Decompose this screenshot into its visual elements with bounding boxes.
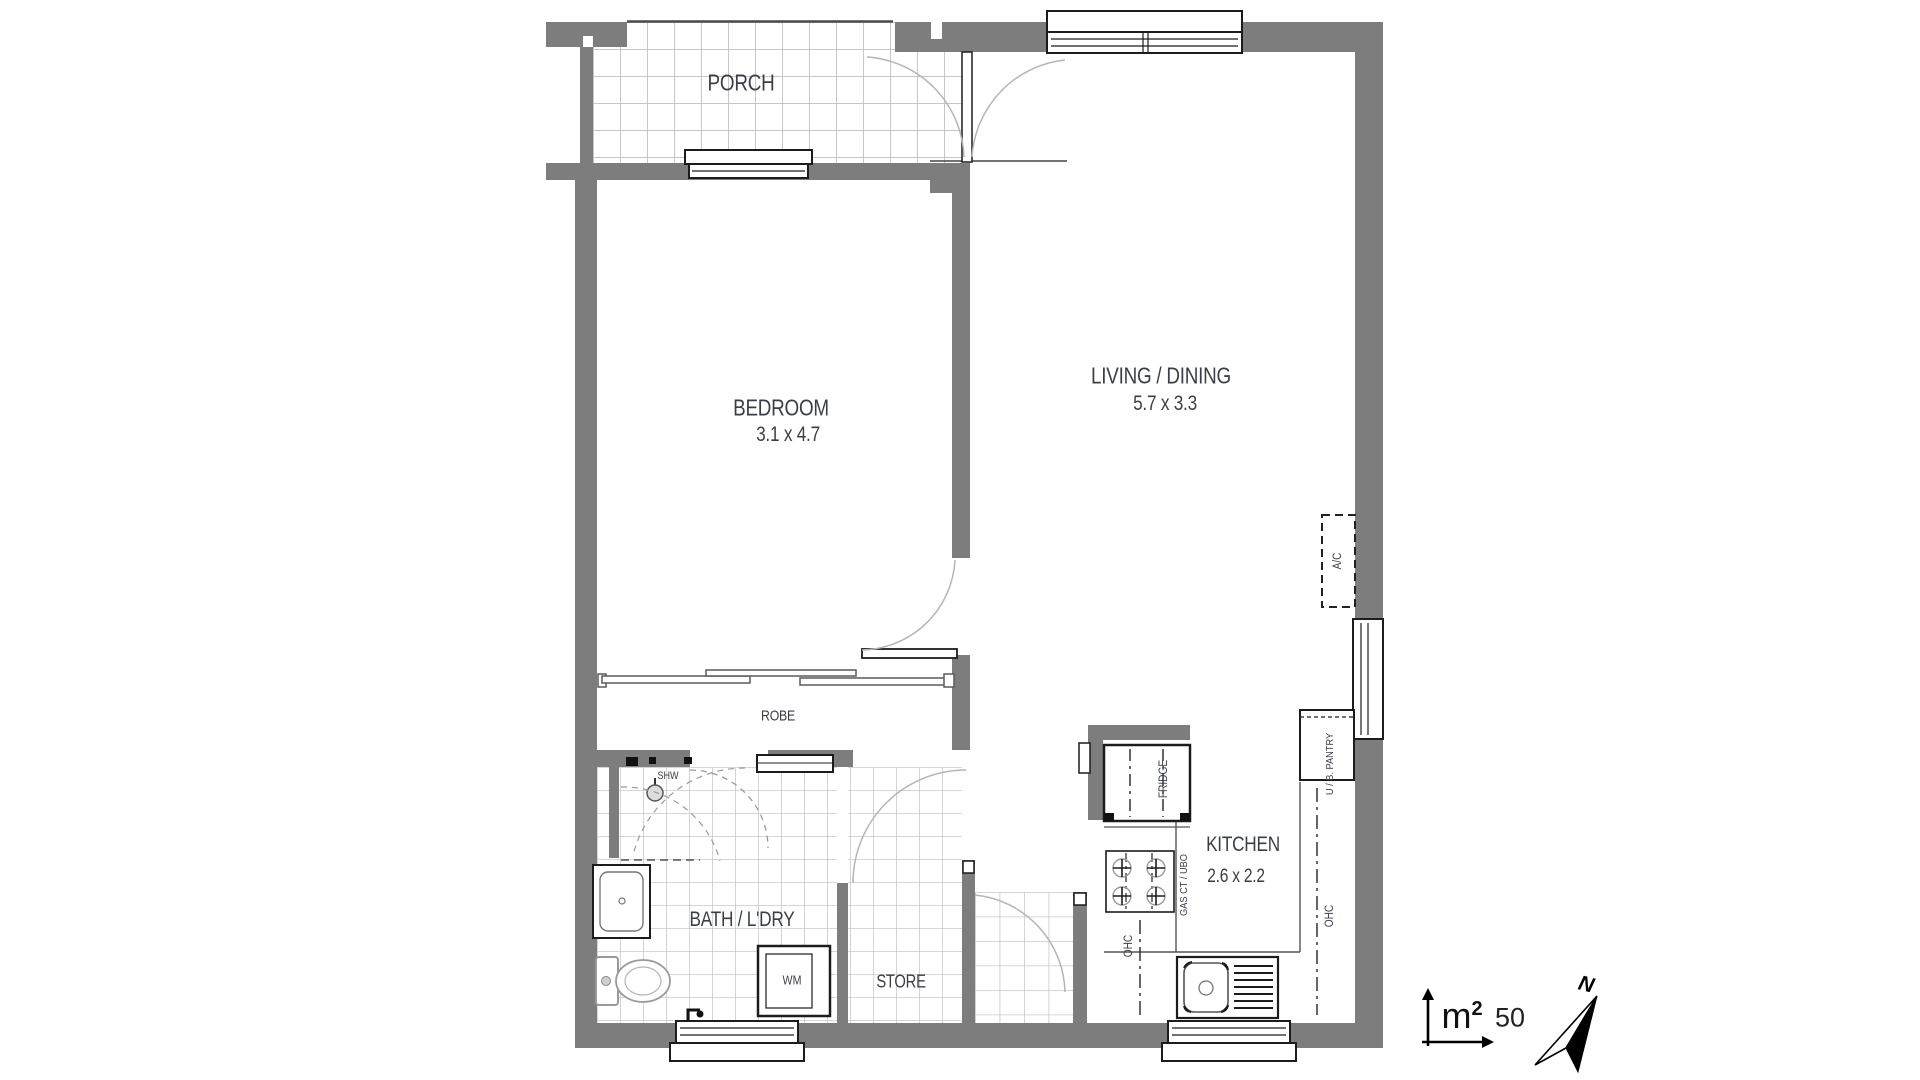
porch-label: PORCH — [708, 70, 775, 97]
window-kitchen — [1162, 1021, 1296, 1061]
kitchen-label: KITCHEN — [1206, 833, 1280, 857]
window-living-right — [1353, 619, 1383, 739]
area-value-label: 50 — [1495, 1003, 1525, 1034]
window-bedroom — [685, 150, 812, 178]
area-unit-label: m2 — [1441, 995, 1482, 1037]
cooktop-label: GAS CT / UBO — [1178, 854, 1190, 916]
ohc-right-label: OHC — [1324, 905, 1336, 927]
wall-end-caps — [963, 743, 1090, 905]
floor-plan-drawing — [0, 0, 1920, 1080]
floor-plan-stage: PORCH BEDROOM 3.1 x 4.7 LIVING / DINING … — [0, 0, 1920, 1080]
living-dining-label: LIVING / DINING — [1091, 363, 1231, 390]
north-arrow-icon — [1535, 996, 1597, 1072]
fridge-label: FRIDGE — [1158, 760, 1170, 798]
store-label: STORE — [876, 972, 925, 993]
ohc-left-label: OHC — [1123, 935, 1135, 957]
window-bath — [670, 1021, 804, 1061]
shower-label: SHW — [657, 770, 678, 782]
living-dining-dimensions: 5.7 x 3.3 — [1133, 392, 1197, 416]
bedroom-door — [862, 560, 957, 658]
bedroom-dimensions: 3.1 x 4.7 — [756, 423, 820, 447]
pantry-label: U / B. PANTRY — [1324, 733, 1336, 795]
area-unit-superscript: 2 — [1471, 998, 1482, 1020]
bedroom-label: BEDROOM — [733, 395, 829, 422]
kitchen-dimensions: 2.6 x 2.2 — [1207, 866, 1265, 888]
window-living-top — [1047, 11, 1242, 53]
robe-sliding-doors — [598, 670, 954, 687]
air-conditioner-label: A/C — [1332, 553, 1344, 570]
robe-label: ROBE — [761, 708, 795, 725]
washing-machine-label: WM — [783, 973, 802, 988]
kitchen-fixtures — [1104, 515, 1355, 1018]
bath-laundry-label: BATH / L'DRY — [690, 908, 795, 932]
